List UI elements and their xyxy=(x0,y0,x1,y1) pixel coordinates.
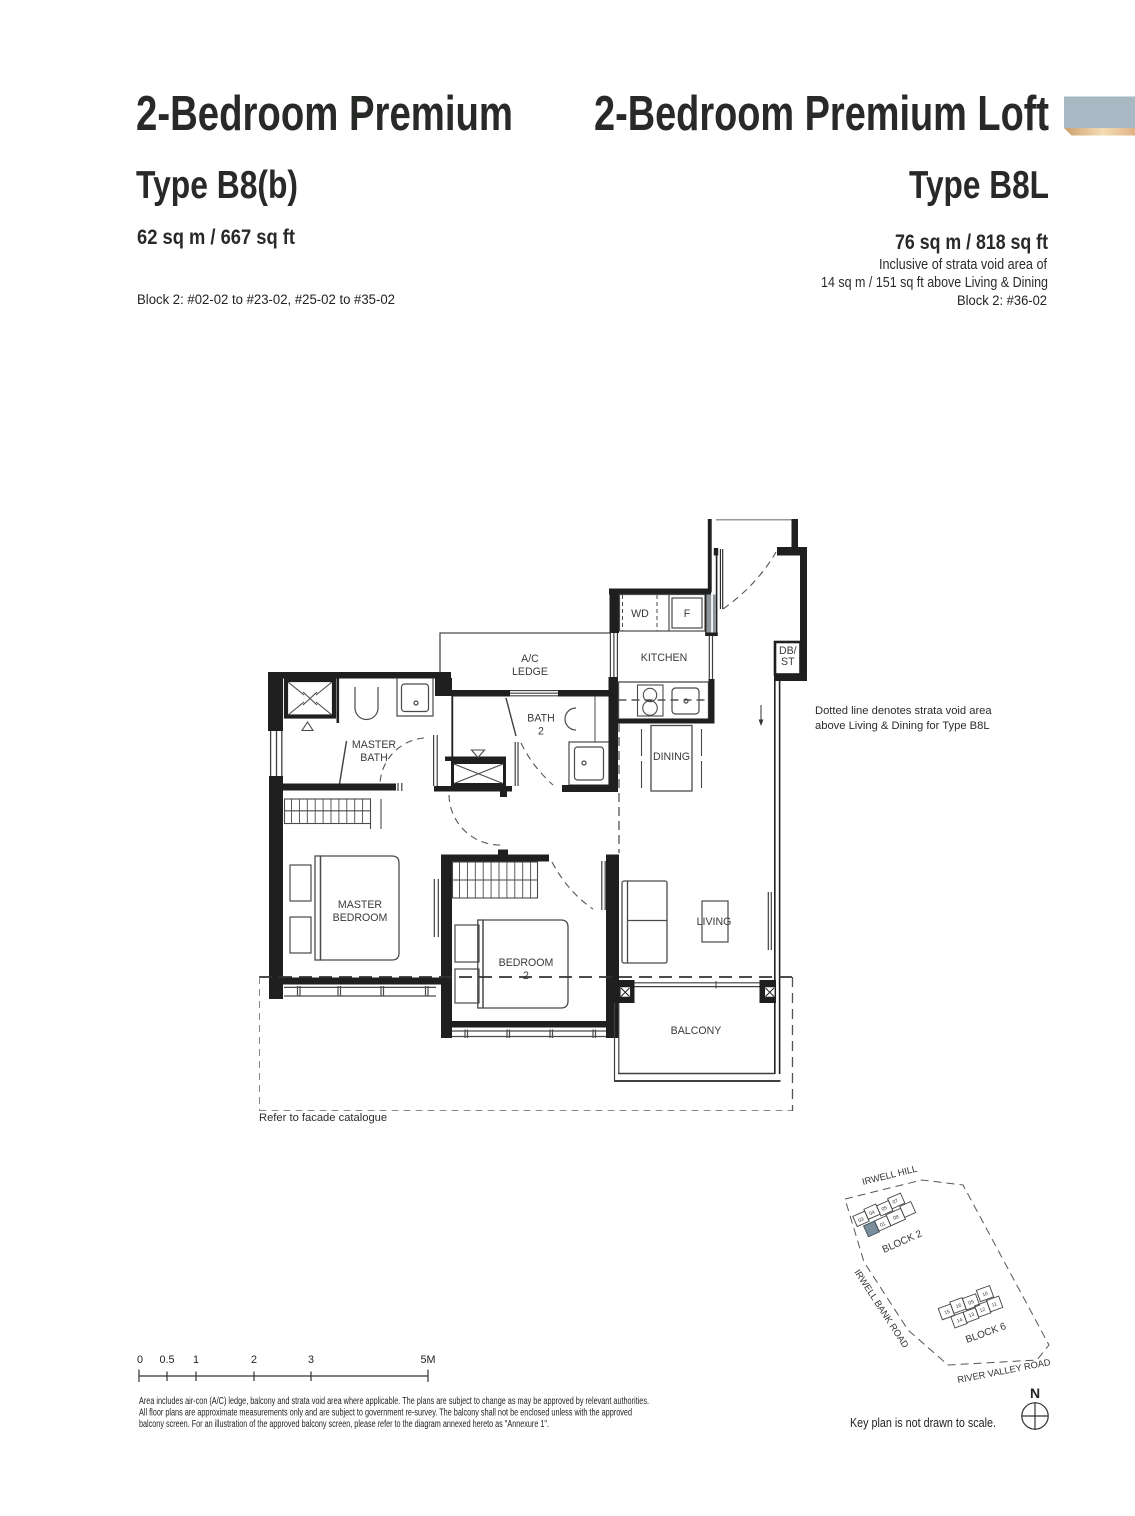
svg-text:0: 0 xyxy=(137,1354,143,1366)
svg-text:DINING: DINING xyxy=(653,751,690,763)
svg-text:balcony screen. For an illustr: balcony screen. For an illustration of t… xyxy=(139,1419,549,1430)
svg-text:Key plan is not drawn to scale: Key plan is not drawn to scale. xyxy=(850,1415,996,1430)
svg-text:2: 2 xyxy=(538,726,544,738)
svg-text:ST: ST xyxy=(781,656,795,668)
svg-text:Area includes air-con (A/C) le: Area includes air-con (A/C) ledge, balco… xyxy=(139,1396,649,1407)
svg-text:2: 2 xyxy=(523,970,529,982)
svg-text:2-Bedroom Premium Loft: 2-Bedroom Premium Loft xyxy=(594,87,1049,141)
svg-text:5M: 5M xyxy=(421,1354,436,1366)
svg-text:above Living & Dining for Type: above Living & Dining for Type B8L xyxy=(815,720,990,732)
svg-text:BATH: BATH xyxy=(527,713,554,725)
svg-text:LIVING: LIVING xyxy=(697,916,732,928)
svg-text:14 sq m / 151 sq ft above Livi: 14 sq m / 151 sq ft above Living & Dinin… xyxy=(821,275,1048,291)
svg-text:N: N xyxy=(1030,1385,1040,1401)
svg-text:62 sq m / 667 sq ft: 62 sq m / 667 sq ft xyxy=(137,225,295,249)
svg-text:KITCHEN: KITCHEN xyxy=(641,652,688,664)
svg-text:1: 1 xyxy=(193,1354,199,1366)
svg-text:Block 2: #02-02 to #23-02, #25: Block 2: #02-02 to #23-02, #25-02 to #35… xyxy=(137,292,395,307)
svg-text:Dotted line denotes strata voi: Dotted line denotes strata void area xyxy=(815,705,992,717)
svg-text:76 sq m / 818 sq ft: 76 sq m / 818 sq ft xyxy=(895,230,1048,254)
svg-text:MASTER: MASTER xyxy=(352,739,396,751)
svg-text:Block 2: #36-02: Block 2: #36-02 xyxy=(957,293,1047,308)
svg-text:Type B8(b): Type B8(b) xyxy=(136,164,298,207)
svg-text:0.5: 0.5 xyxy=(159,1354,174,1366)
svg-text:3: 3 xyxy=(308,1354,314,1366)
svg-text:WD: WD xyxy=(631,608,649,620)
svg-text:2: 2 xyxy=(251,1354,257,1366)
svg-text:Type B8L: Type B8L xyxy=(909,164,1049,207)
svg-text:Inclusive of strata void area: Inclusive of strata void area of xyxy=(879,257,1048,273)
svg-text:BALCONY: BALCONY xyxy=(671,1025,722,1037)
svg-text:F: F xyxy=(684,608,691,620)
svg-text:2-Bedroom Premium: 2-Bedroom Premium xyxy=(136,87,513,141)
svg-text:LEDGE: LEDGE xyxy=(512,666,548,678)
svg-text:A/C: A/C xyxy=(521,653,539,665)
svg-text:BATH: BATH xyxy=(360,752,387,764)
svg-text:All floor plans are approximat: All floor plans are approximate measurem… xyxy=(139,1408,632,1419)
svg-text:Refer to facade catalogue: Refer to facade catalogue xyxy=(259,1112,387,1124)
svg-text:BEDROOM: BEDROOM xyxy=(333,912,388,924)
svg-text:MASTER: MASTER xyxy=(338,899,382,911)
svg-text:BEDROOM: BEDROOM xyxy=(499,957,554,969)
